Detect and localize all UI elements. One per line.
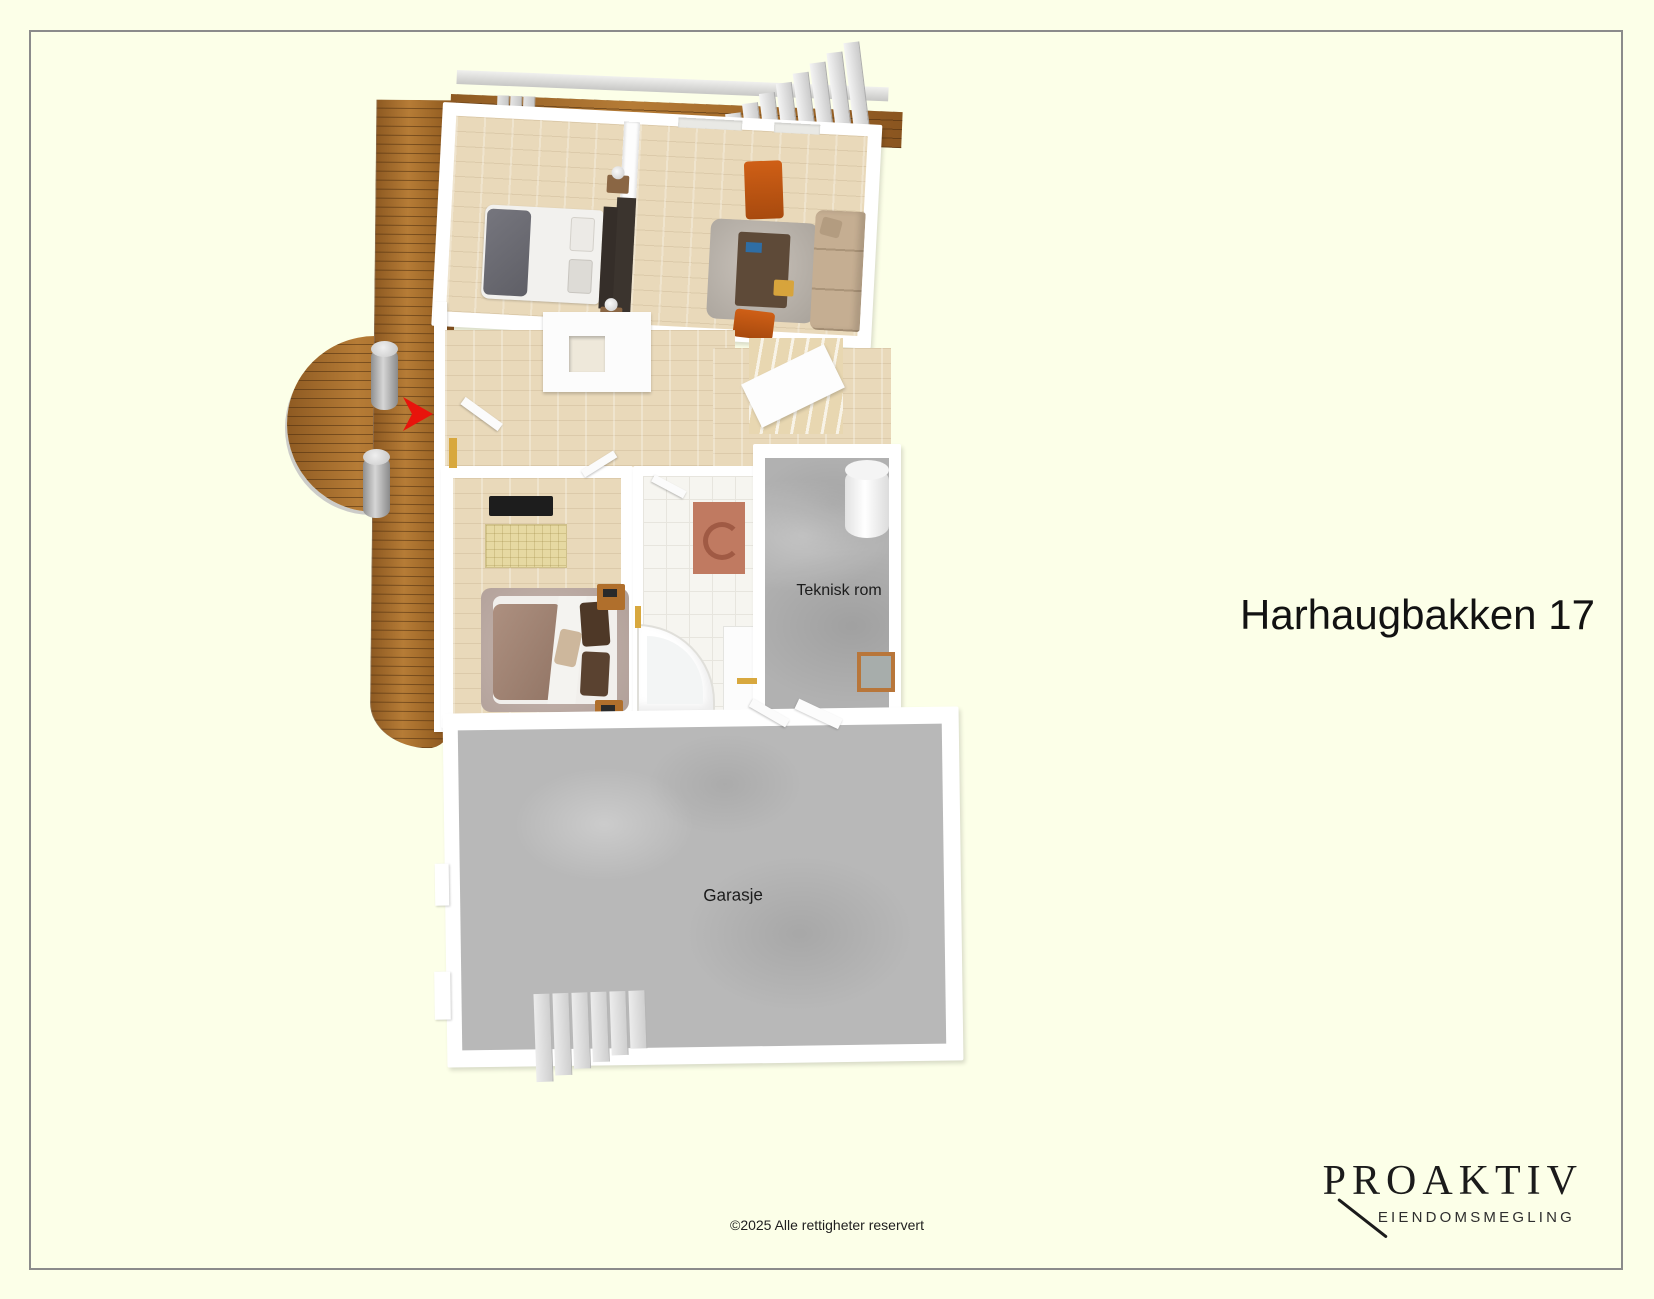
bed xyxy=(493,596,617,704)
lounge-chair xyxy=(732,308,775,341)
technical-room: Teknisk rom xyxy=(753,444,901,730)
nightstand xyxy=(597,584,625,610)
bed xyxy=(481,204,604,304)
floor-plan: Teknisk rom Garasje xyxy=(285,50,985,1090)
bedroom-2 xyxy=(441,466,633,728)
room-label-technical: Teknisk rom xyxy=(777,582,901,600)
water-heater xyxy=(845,468,889,538)
pillow xyxy=(567,259,593,294)
bed-blanket xyxy=(483,208,531,296)
exterior-wall xyxy=(434,972,451,1020)
hallway-closet xyxy=(543,312,651,392)
brand-logo: PROAKTIV EIENDOMSMEGLING xyxy=(1287,1160,1577,1226)
door-threshold xyxy=(449,438,457,468)
upper-rooms xyxy=(431,102,882,349)
pillow xyxy=(580,651,610,696)
exterior-stairs-lower xyxy=(533,990,658,1084)
bench xyxy=(485,524,567,568)
floor-hatch xyxy=(857,652,895,692)
tv xyxy=(489,496,553,516)
exterior-wall xyxy=(435,864,450,906)
coffee-table xyxy=(735,232,791,309)
logo-tagline: EIENDOMSMEGLING xyxy=(1287,1209,1575,1226)
nightstand xyxy=(606,175,629,194)
deck-post xyxy=(363,456,390,518)
sofa xyxy=(810,210,866,332)
pillow xyxy=(569,217,595,252)
garage: Garasje xyxy=(443,706,964,1067)
bathroom-vanity xyxy=(693,502,745,574)
door-threshold xyxy=(737,678,757,684)
deck-post xyxy=(371,348,398,410)
page-title: Harhaugbakken 17 xyxy=(1240,591,1595,639)
lounge-chair xyxy=(744,160,784,219)
door-threshold xyxy=(635,606,641,628)
logo-wordmark: PROAKTIV xyxy=(1287,1160,1583,1202)
